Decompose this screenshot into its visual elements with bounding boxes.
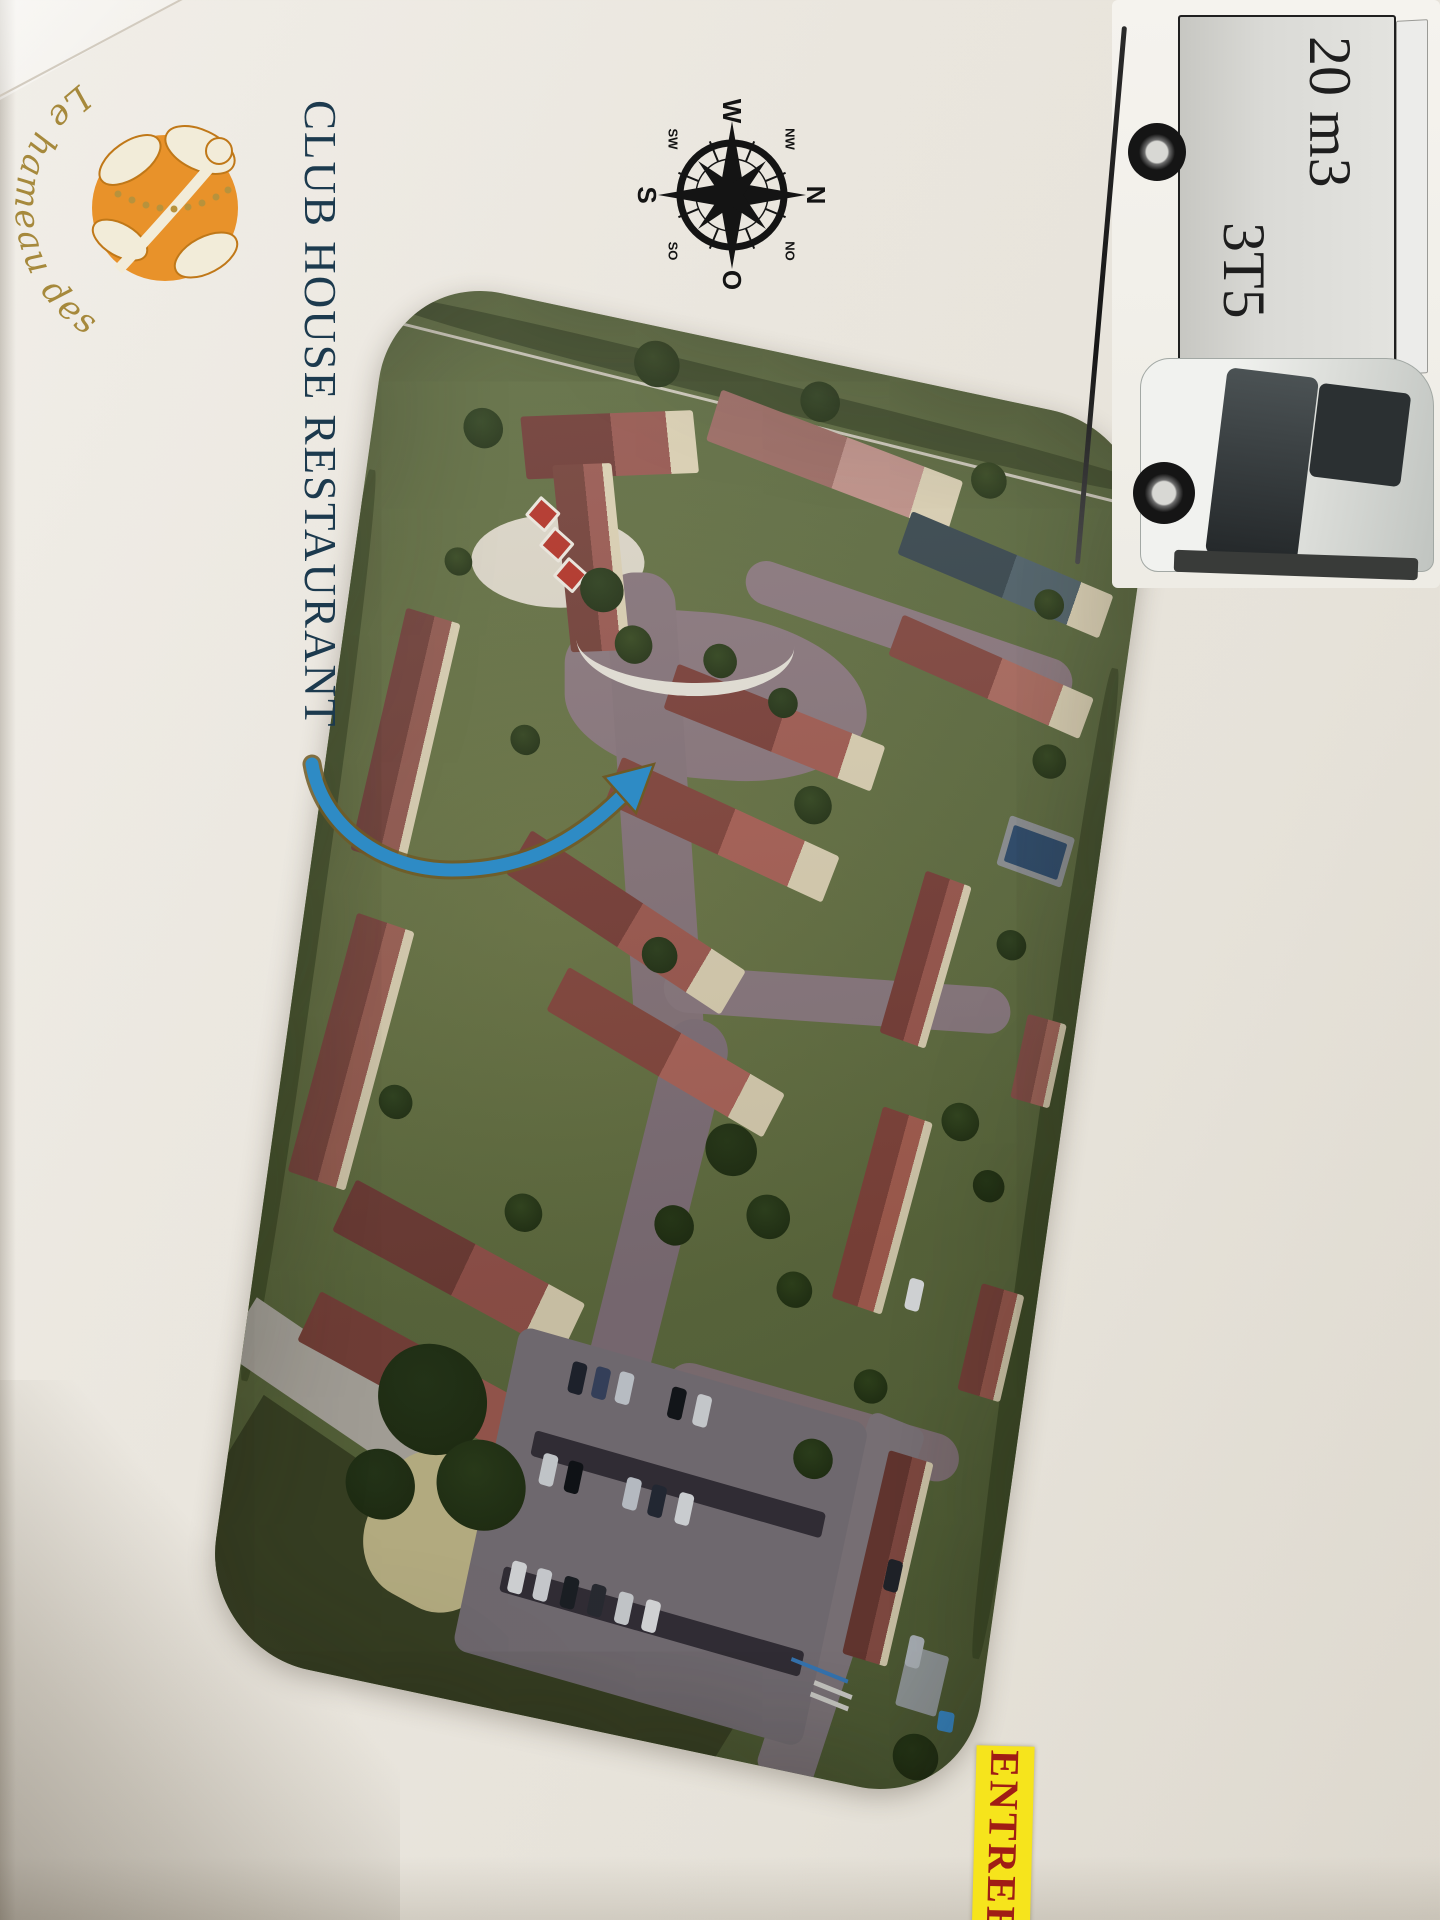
aerial-scene [394, 270, 1159, 433]
photographed-site-plan-page: { "logo": { "label": "Le hameau des Fées… [0, 0, 1440, 1920]
tree [443, 545, 474, 579]
truck-volume-label: 20 m3 [1294, 36, 1364, 266]
compass-label-no: NO [782, 241, 797, 261]
hedge-top [378, 284, 1159, 506]
entrance-sign-text: ENTREE R [976, 1745, 1029, 1920]
tree [502, 1190, 545, 1236]
tree [377, 1082, 415, 1123]
tree [852, 1366, 890, 1407]
truck-tonnage-label: 3T5 [1208, 222, 1278, 372]
pool-blue [936, 1710, 954, 1733]
car [904, 1277, 925, 1312]
truck-cab [1132, 358, 1440, 588]
tree [1030, 741, 1068, 782]
compass-label-n: N [801, 186, 828, 205]
tree [774, 1268, 814, 1311]
tree [995, 927, 1029, 963]
paper-edge-shadow-bottom [0, 1856, 1440, 1920]
compass-label-s: S [636, 186, 662, 203]
truck-rear-wheel [1128, 123, 1186, 181]
compass-label-sw: SW [665, 129, 680, 151]
tree [792, 782, 835, 828]
shed-roof [895, 1645, 949, 1717]
hedge-right [963, 666, 1128, 1662]
compass-label-so: SO [665, 242, 680, 261]
truck-cargo-box-top [1396, 19, 1428, 375]
compass-label-w: W [717, 99, 747, 124]
compass-rose: N O S W NO SO SW NW [636, 99, 828, 291]
tree [461, 404, 506, 452]
truck-door-window [1309, 383, 1412, 488]
moving-truck-photo: 20 m3 3T5 [1112, 0, 1440, 588]
entrance-sign: ENTREE R [971, 1745, 1034, 1920]
tree [939, 1099, 982, 1145]
tree [744, 1190, 793, 1243]
truck-front-wheel [1133, 462, 1195, 524]
compass-label-nw: NW [782, 128, 797, 150]
tree [971, 1167, 1007, 1205]
tree [890, 1729, 942, 1784]
compass-label-o: O [717, 270, 747, 290]
tree [508, 722, 542, 758]
club-house-restaurant-label: CLUB HOUSE RESTAURANT [284, 100, 346, 800]
